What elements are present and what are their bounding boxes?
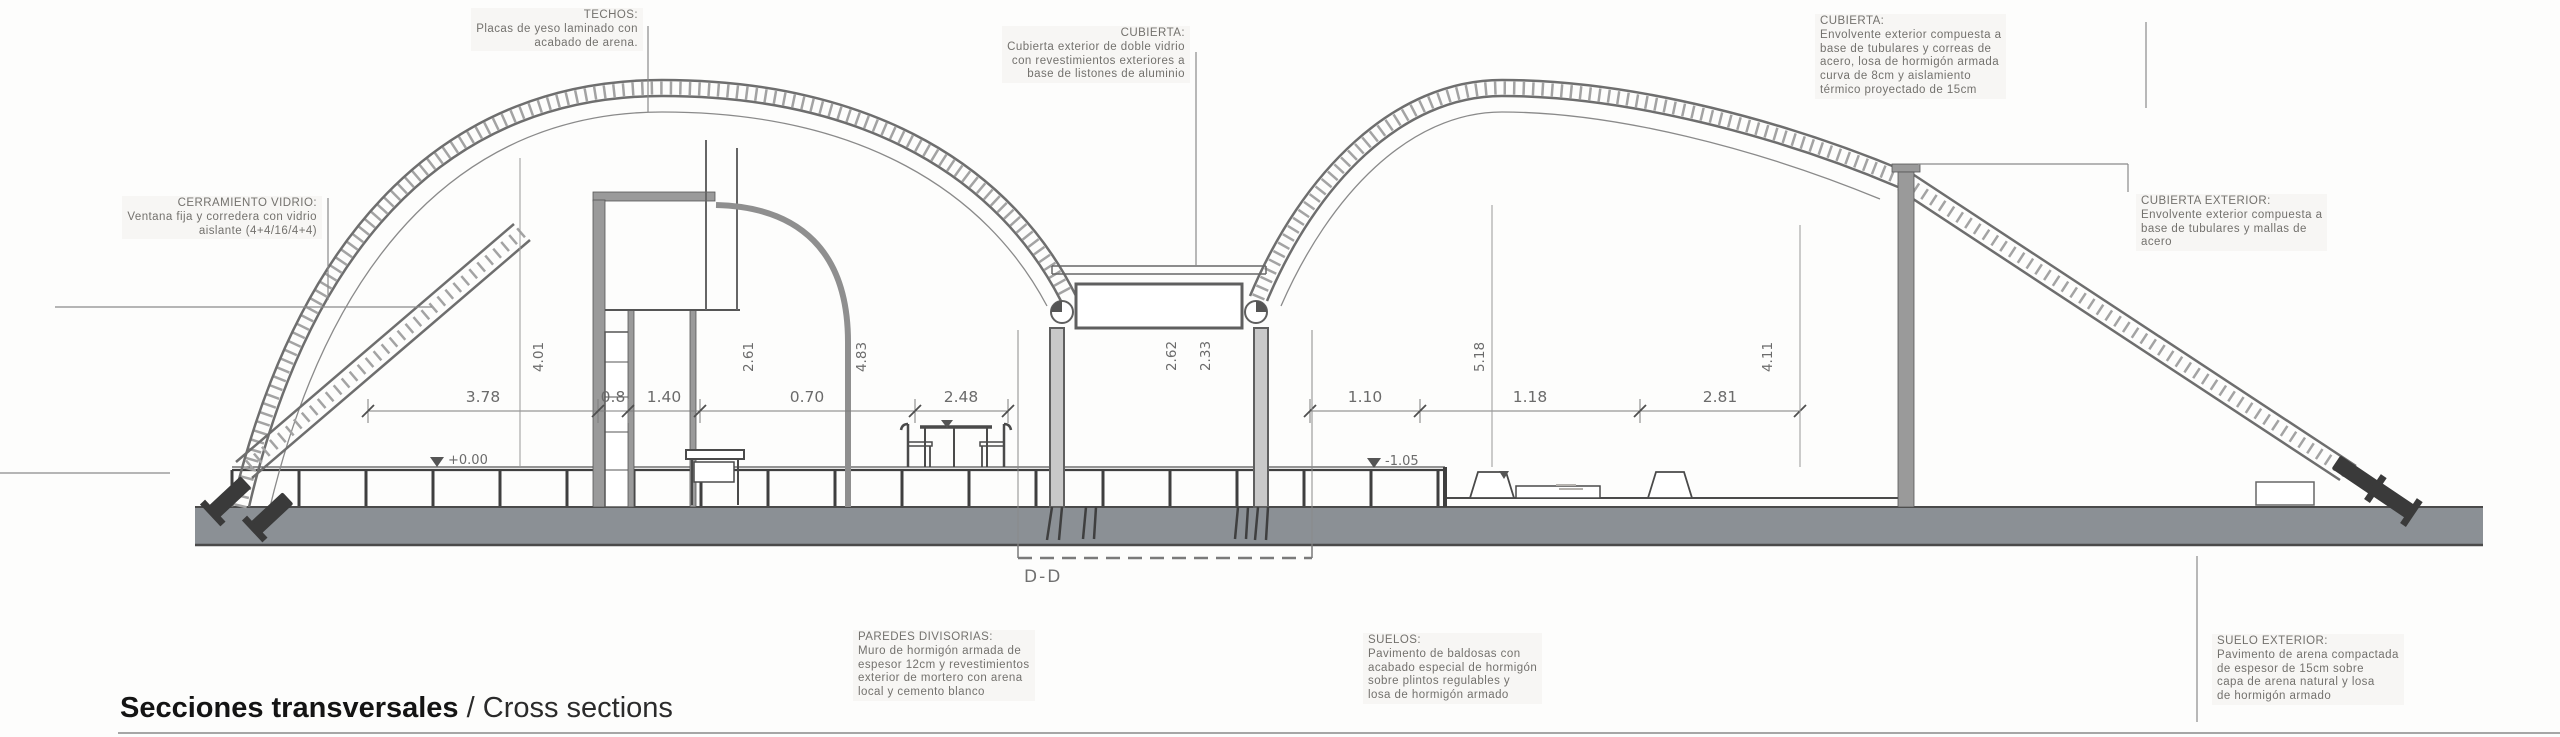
dimension-labels-horizontal: 3.78 0.8 1.40 0.70 2.48 1.10 1.18 2.81 <box>466 388 1738 406</box>
dim-label: 1.10 <box>1348 388 1383 406</box>
annotation-line: Pavimento de baldosas con <box>1368 648 1537 662</box>
annotation-line: de espesor de 15cm sobre <box>2217 663 2399 677</box>
dim-label: 5.18 <box>1472 342 1488 372</box>
annotation-line: Placas de yeso laminado con <box>476 23 638 37</box>
valley-gutter <box>1051 266 1267 328</box>
dim-label: 4.83 <box>854 342 870 372</box>
ground-slab <box>195 507 2483 545</box>
annotation-line: capa de arena natural y losa <box>2217 676 2399 690</box>
annotation-line: acero, losa de hormigón armada <box>1820 56 2001 70</box>
dim-label: 2.48 <box>944 388 979 406</box>
strut-left <box>236 224 530 478</box>
dim-label: 0.8 <box>601 388 626 406</box>
floor-platform <box>1516 486 1600 498</box>
annotation-line: sobre plintos regulables y <box>1368 675 1537 689</box>
annotation-line: espesor 12cm y revestimientos <box>858 659 1030 673</box>
dim-label: 4.01 <box>531 342 547 372</box>
annotation-line: aislante (4+4/16/4+4) <box>127 225 317 239</box>
dim-label: 2.62 <box>1164 341 1180 371</box>
dim-label: 1.40 <box>647 388 682 406</box>
annotation-cubierta-exterior: CUBIERTA EXTERIOR: Envolvente exterior c… <box>2136 194 2327 251</box>
cabinet <box>605 332 631 507</box>
bench <box>1648 472 1692 498</box>
annotation-techos: TECHOS: Placas de yeso laminado con acab… <box>471 8 643 51</box>
duct <box>706 140 737 310</box>
annotation-line: Cubierta exterior de doble vidrio <box>1007 41 1185 55</box>
annotation-heading: PAREDES DIVISORIAS: <box>858 631 1030 645</box>
dim-label: 3.78 <box>466 388 501 406</box>
table-chairs <box>901 424 1011 467</box>
annotation-heading: CUBIERTA: <box>1007 27 1185 41</box>
level-label: +0.00 <box>448 453 488 468</box>
annotation-heading: CUBIERTA: <box>1820 15 2001 29</box>
annotation-line: Muro de hormigón armada de <box>858 645 1030 659</box>
annotation-cerramiento-vidrio: CERRAMIENTO VIDRIO: Ventana fija y corre… <box>122 196 322 239</box>
exterior-block <box>2256 482 2314 505</box>
annotation-suelo-exterior: SUELO EXTERIOR: Pavimento de arena compa… <box>2212 634 2404 705</box>
bench <box>1470 472 1514 498</box>
dim-label: 0.70 <box>790 388 825 406</box>
annotation-line: curva de 8cm y aislamiento <box>1820 70 2001 84</box>
arch-right <box>1250 80 1914 306</box>
dim-label: 1.18 <box>1513 388 1548 406</box>
leader-lines <box>0 22 2197 722</box>
annotation-line: base de tubulares y mallas de <box>2141 223 2322 237</box>
annotation-heading: CERRAMIENTO VIDRIO: <box>127 197 317 211</box>
section-bracket: D-D <box>1018 545 1312 587</box>
right-wall <box>1892 164 1920 507</box>
annotation-line: Envolvente exterior compuesta a <box>2141 209 2322 223</box>
annotation-suelos: SUELOS: Pavimento de baldosas con acabad… <box>1363 633 1542 704</box>
annotation-line: base de listones de aluminio <box>1007 68 1185 82</box>
annotation-line: exterior de mortero con arena <box>858 672 1030 686</box>
annotation-line: Ventana fija y corredera con vidrio <box>127 211 317 225</box>
sunken-floor <box>1447 472 2314 505</box>
annotation-line: acabado especial de hormigón <box>1368 662 1537 676</box>
sheet-title-es: Secciones transversales <box>120 692 459 724</box>
annotation-heading: TECHOS: <box>476 9 638 23</box>
annotation-line: acabado de arena. <box>476 37 638 51</box>
curved-partition <box>716 205 848 507</box>
annotation-line: base de tubulares y correas de <box>1820 43 2001 57</box>
sheet-title-en: Cross sections <box>483 692 673 724</box>
annotation-line: Envolvente exterior compuesta a <box>1820 29 2001 43</box>
section-mark-label: D-D <box>1024 567 1062 587</box>
cross-section-sheet: D-D <box>0 0 2560 737</box>
annotation-heading: CUBIERTA EXTERIOR: <box>2141 195 2322 209</box>
annotation-line: de hormigón armado <box>2217 690 2399 704</box>
dim-label: 2.33 <box>1198 341 1214 371</box>
sheet-title-separator: / <box>467 692 475 724</box>
annotation-line: térmico proyectado de 15cm <box>1820 84 2001 98</box>
level-label: -1.05 <box>1385 454 1419 469</box>
dim-label: 2.61 <box>741 342 757 372</box>
dim-label: 2.81 <box>1703 388 1738 406</box>
annotation-line: con revestimientos exteriores a <box>1007 55 1185 69</box>
annotation-heading: SUELO EXTERIOR: <box>2217 635 2399 649</box>
dimension-labels-vertical: 4.01 2.61 4.83 2.62 2.33 5.18 4.11 <box>531 341 1776 372</box>
annotation-line: acero <box>2141 236 2322 250</box>
annotation-line: local y cemento blanco <box>858 686 1030 700</box>
dim-label: 4.11 <box>1760 342 1776 372</box>
annotation-line: losa de hormigón armado <box>1368 689 1537 703</box>
section-drawing: D-D <box>0 0 2560 737</box>
annotation-cubierta-derecha: CUBIERTA: Envolvente exterior compuesta … <box>1815 14 2006 99</box>
annotation-heading: SUELOS: <box>1368 634 1537 648</box>
annotation-line: Pavimento de arena compactada <box>2217 649 2399 663</box>
arch-left <box>232 80 1076 507</box>
annotation-paredes-divisorias: PAREDES DIVISORIAS: Muro de hormigón arm… <box>853 630 1035 701</box>
annotation-cubierta-central: CUBIERTA: Cubierta exterior de doble vid… <box>1002 26 1190 83</box>
sheet-title: Secciones transversales / Cross sections <box>120 692 673 725</box>
